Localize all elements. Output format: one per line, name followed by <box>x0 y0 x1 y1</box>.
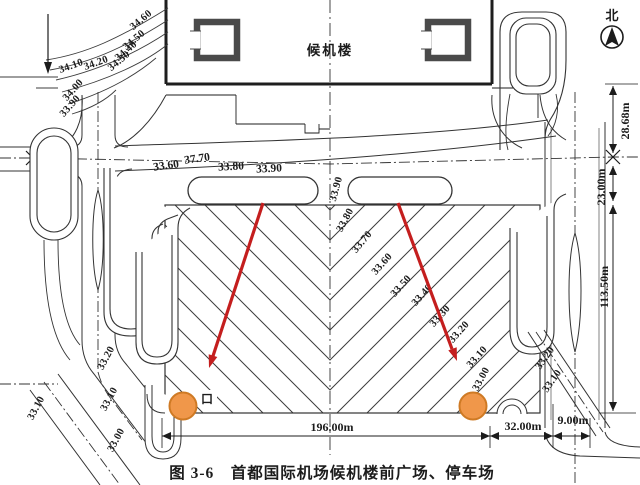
dimension-label-9-00m: 9.00m <box>558 413 589 427</box>
main-road-lines <box>0 95 566 186</box>
elevation-label: 34.20 <box>82 54 109 73</box>
elevation-label: 34.60 <box>128 8 154 33</box>
left-loop-ramp <box>30 128 80 360</box>
elevation-label: 37.70 <box>183 151 211 167</box>
dimension-label-113-50m: 113.50m <box>597 266 611 308</box>
elevation-label: 33.00 <box>106 427 128 454</box>
figure-caption: 图 3-6 首都国际机场候机楼前广场、停车场 <box>169 463 495 482</box>
north-compass: 北 <box>601 8 623 48</box>
site-plan-figure: 34.60 34.50 34.40 34.30 34.20 34.10 34.0… <box>0 0 640 485</box>
median-islands <box>188 177 452 204</box>
north-label: 北 <box>605 8 618 23</box>
elevation-label: 33.60 <box>152 158 180 174</box>
terminal-building-label: 候机楼 <box>307 42 354 58</box>
elevation-label: 33.20 <box>96 345 118 372</box>
elevation-label: 33.80 <box>218 160 245 173</box>
terminal-structure-right <box>421 22 468 58</box>
elevation-labels-topleft: 34.60 34.50 34.40 34.30 34.20 34.10 34.0… <box>57 8 154 119</box>
dimension-label-28-68m: 28.68m <box>618 103 632 140</box>
road-centerline-horizontal <box>0 150 640 165</box>
elevation-labels-road-row: 33.60 37.70 33.80 33.90 <box>152 151 282 175</box>
dimension-label-23-00m: 23.00m <box>594 169 608 206</box>
plan-drawing: 34.60 34.50 34.40 34.30 34.20 34.10 34.0… <box>0 0 640 485</box>
entry-arrow-topleft <box>44 14 52 74</box>
entrance-marker-left <box>170 393 197 420</box>
plaza-left-hairpins <box>104 168 190 364</box>
gate-label: 口 <box>201 392 213 406</box>
dimension-label-32-00m: 32.00m <box>505 419 542 433</box>
terminal-structure-left <box>190 22 237 58</box>
elevation-label: 33.10 <box>99 386 121 413</box>
bottom-left-road <box>0 374 181 485</box>
entrance-marker-right <box>460 393 487 420</box>
dimension-label-196-00m: 196.00m <box>311 420 354 434</box>
top-right-loop-ramp <box>500 12 566 150</box>
elevation-label: 33.90 <box>328 176 345 203</box>
elevation-label: 33.90 <box>256 162 283 175</box>
